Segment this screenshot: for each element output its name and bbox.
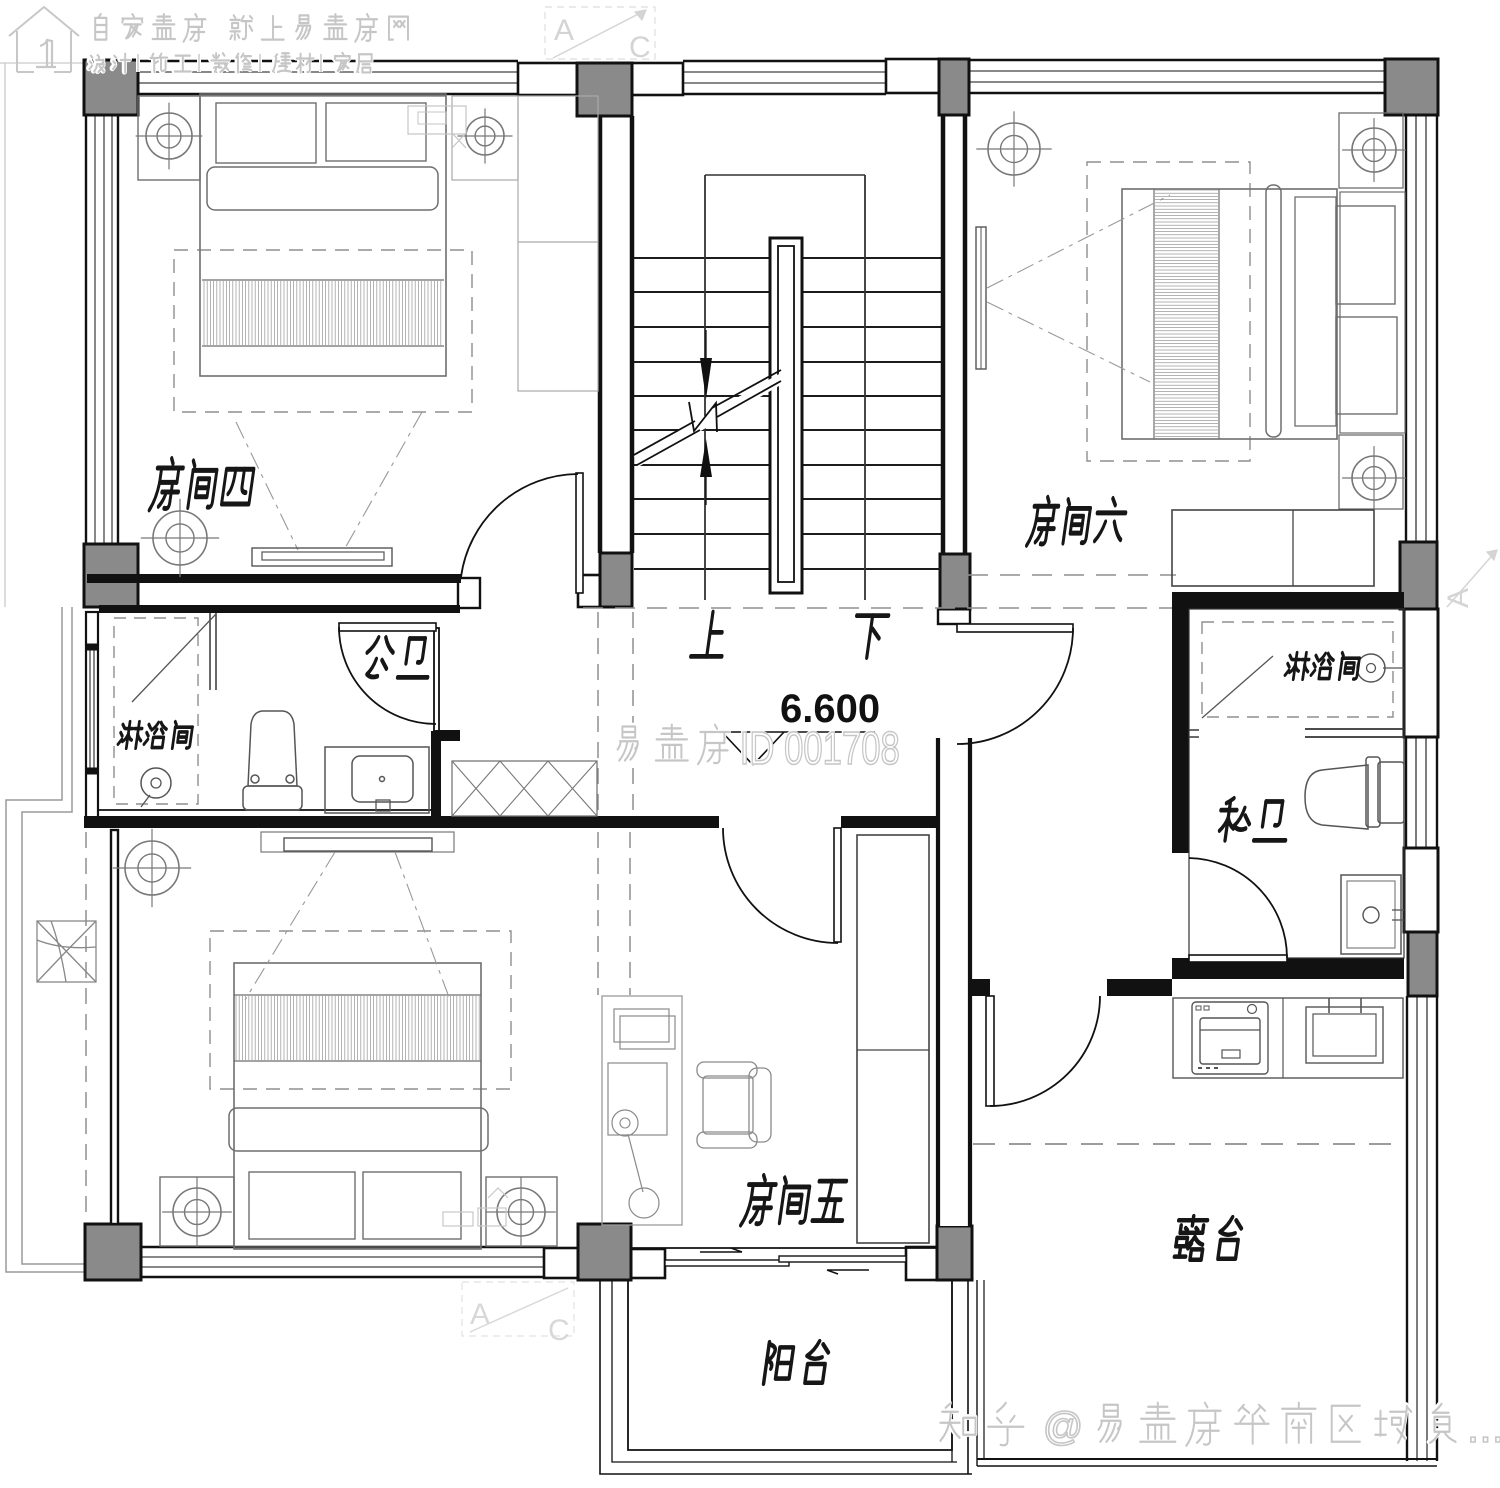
svg-text:A: A [554,14,574,47]
svg-text:A: A [1442,588,1475,608]
svg-text:C: C [629,31,651,64]
svg-text:ID 001708: ID 001708 [740,722,900,774]
svg-text:C: C [548,1314,570,1347]
svg-text:A: A [470,1298,490,1331]
svg-text:@: @ [1043,1405,1084,1449]
svg-text:...: ... [1467,1401,1500,1452]
